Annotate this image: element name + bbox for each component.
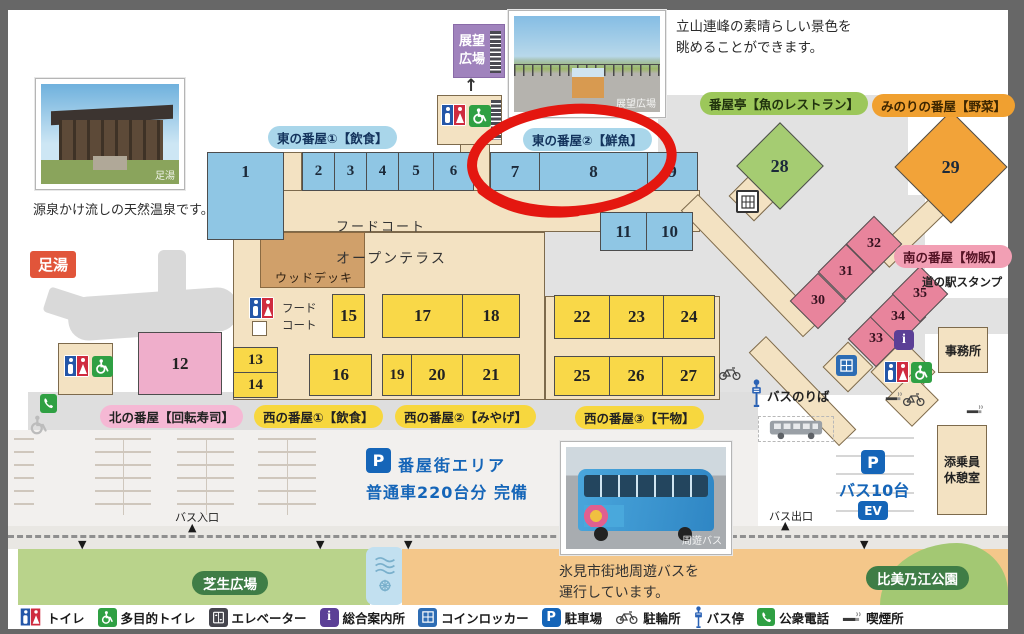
food-court-small-label: フード コート bbox=[282, 300, 317, 333]
road-centerline bbox=[8, 535, 1008, 538]
building-1: 1 bbox=[207, 152, 284, 240]
building-23: 23 bbox=[609, 295, 664, 339]
zone-label-north-banya: 北の番屋【回転寿司】 bbox=[100, 405, 243, 428]
stairs-icon bbox=[490, 31, 501, 73]
highlight-circle-annotation bbox=[452, 96, 692, 232]
parking-rows bbox=[177, 438, 234, 515]
ashiyu-label: 足湯 bbox=[38, 256, 68, 274]
building-15: 15 bbox=[332, 294, 365, 338]
building-25: 25 bbox=[554, 356, 610, 396]
office-building: 事務所 bbox=[938, 327, 988, 373]
bus-exit-marker: ▲ bbox=[781, 519, 789, 532]
legend-item-information: i 総合案内所 bbox=[320, 608, 406, 627]
onsen-caption: 源泉かけ流しの天然温泉です。 bbox=[33, 199, 214, 218]
zone-label-minori-banya: みのりの番屋【野菜】 bbox=[872, 94, 1015, 117]
crossing-marker: ▼ bbox=[404, 538, 412, 551]
parking-rows bbox=[14, 438, 34, 515]
crossing-marker: ▼ bbox=[78, 538, 86, 551]
onsen-photo: 足湯 bbox=[35, 78, 185, 190]
smoking-area-icon bbox=[966, 404, 984, 415]
legend-item-toilet: トイレ bbox=[18, 606, 85, 628]
building-12: 12 bbox=[138, 332, 222, 395]
legend-item-parking: P 駐車場 bbox=[542, 608, 603, 627]
food-court-label: フードコート bbox=[336, 216, 426, 235]
open-terrace-label: オープンテラス bbox=[336, 248, 447, 268]
office-label: 事務所 bbox=[945, 342, 981, 359]
legend-item-bus-stop: バス停 bbox=[694, 606, 745, 628]
building-16: 16 bbox=[309, 354, 372, 396]
public-phone-icon bbox=[40, 394, 57, 413]
building-2: 2 bbox=[302, 152, 335, 191]
bus-silhouette-icon bbox=[758, 416, 834, 442]
legend-item-smoking-area: 喫煙所 bbox=[842, 608, 904, 627]
building-13: 13 bbox=[233, 347, 278, 373]
toilet-icon bbox=[64, 355, 89, 377]
zone-label-west-banya-1: 西の番屋①【飲食】 bbox=[254, 405, 383, 428]
building-19: 19 bbox=[382, 354, 412, 396]
crew-lounge-building: 添乗員休憩室 bbox=[937, 425, 987, 515]
building-18: 18 bbox=[462, 294, 520, 338]
bus-exit-label: バス出口 bbox=[769, 508, 813, 524]
walkway bbox=[283, 152, 302, 192]
ev-charger-icon: EV bbox=[858, 501, 888, 520]
information-icon: i bbox=[894, 330, 914, 350]
public-phone-icon bbox=[757, 608, 775, 626]
building-27: 27 bbox=[662, 356, 715, 396]
bus-parking-icon: P bbox=[861, 450, 885, 474]
bicycle-parking-icon bbox=[902, 392, 926, 406]
smoking-area-icon bbox=[885, 391, 903, 402]
building-4: 4 bbox=[366, 152, 399, 191]
legend-item-accessible-toilet: 多目的トイレ bbox=[98, 608, 196, 627]
map-legend: トイレ 多目的トイレ エレベーター i 総合案内所 コインロッカー P 駐車場 … bbox=[18, 606, 904, 628]
legend-item-bicycle-parking: 駐輪所 bbox=[615, 608, 681, 627]
michinoeki-stamp-label: 道の駅スタンプ bbox=[922, 274, 1002, 290]
building-3: 3 bbox=[334, 152, 367, 191]
footpath bbox=[158, 250, 186, 310]
lawn-plaza-label: 芝生広場 bbox=[192, 571, 268, 595]
bus-photo: 周遊バス bbox=[560, 441, 732, 555]
building-21: 21 bbox=[462, 354, 520, 396]
toilet-icon bbox=[884, 361, 909, 383]
building-17: 17 bbox=[382, 294, 463, 338]
up-arrow-icon: ↑ bbox=[464, 76, 478, 96]
bus-stop-icon bbox=[750, 379, 763, 407]
zone-label-south-banya: 南の番屋【物販】 bbox=[894, 245, 1012, 268]
bus-stop-icon bbox=[694, 606, 703, 628]
zone-label-banya-tei: 番屋亭【魚のレストラン】 bbox=[700, 92, 868, 115]
observation-plaza-label: 展望広場 bbox=[459, 33, 487, 69]
himinoe-park-label: 比美乃江公園 bbox=[866, 566, 969, 590]
elevator-icon bbox=[209, 608, 228, 627]
parking-rows bbox=[258, 438, 316, 515]
legend-item-elevator: エレベーター bbox=[209, 608, 307, 627]
bus-stop-label: バスのりば bbox=[767, 386, 830, 405]
ashiyu-box: 足湯 bbox=[30, 251, 76, 278]
building-20: 20 bbox=[411, 354, 463, 396]
parking-area-label: 番屋街エリア bbox=[398, 452, 506, 476]
bus-parking-label: バス10台 bbox=[839, 477, 909, 501]
fountain-icon bbox=[371, 555, 399, 595]
smoking-area-icon bbox=[842, 611, 862, 623]
bicycle-parking-icon bbox=[615, 610, 639, 624]
wood-deck-label: ウッドデッキ bbox=[275, 269, 353, 286]
parking-icon: P bbox=[542, 608, 561, 627]
coin-locker-icon bbox=[736, 190, 759, 213]
accessible-toilet-icon bbox=[911, 362, 932, 383]
zone-label-west-banya-3: 西の番屋③【干物】 bbox=[575, 406, 704, 429]
kiosk-box bbox=[252, 321, 267, 336]
building-5: 5 bbox=[398, 152, 434, 191]
zone-label-west-banya-2: 西の番屋②【みやげ】 bbox=[395, 405, 536, 428]
legend-item-public-phone: 公衆電話 bbox=[757, 608, 829, 627]
crossing-marker: ▼ bbox=[860, 538, 868, 551]
zone-label-east-banya-1: 東の番屋①【飲食】 bbox=[268, 126, 397, 149]
building-24: 24 bbox=[663, 295, 715, 339]
building-26: 26 bbox=[609, 356, 663, 396]
parking-rows bbox=[95, 438, 151, 515]
photo-watermark: 足湯 bbox=[155, 167, 175, 182]
facility-map: 事務所 添乗員休憩室 1 2 3 4 5 6 7 8 9 10 11 12 13… bbox=[0, 0, 1024, 634]
legend-item-coin-locker: コインロッカー bbox=[418, 608, 529, 627]
bus-caption: 氷見市街地周遊バスを 運行しています。 bbox=[559, 562, 699, 604]
photo-watermark: 周遊バス bbox=[682, 532, 722, 547]
parking-capacity-label: 普通車220台分 完備 bbox=[366, 479, 528, 503]
bicycle-parking-icon bbox=[718, 366, 742, 380]
toilet-icon bbox=[20, 608, 41, 627]
accessible-toilet-icon bbox=[98, 608, 117, 627]
building-22: 22 bbox=[554, 295, 610, 339]
crew-lounge-label: 添乗員休憩室 bbox=[943, 454, 981, 486]
coin-locker-icon bbox=[418, 608, 437, 627]
accessible-parking-icon bbox=[28, 414, 50, 436]
bus-entrance-label: バス入口 bbox=[175, 509, 219, 525]
toilet-icon bbox=[249, 297, 274, 319]
parking-icon: P bbox=[366, 448, 391, 473]
information-icon: i bbox=[320, 608, 339, 627]
accessible-toilet-icon bbox=[92, 356, 113, 377]
crossing-marker: ▼ bbox=[316, 538, 324, 551]
bus-entrance-marker: ▲ bbox=[188, 521, 196, 534]
coin-locker-icon bbox=[836, 355, 857, 376]
building-14: 14 bbox=[233, 372, 278, 398]
observation-caption: 立山連峰の素晴らしい景色を 眺めることができます。 bbox=[676, 17, 852, 59]
